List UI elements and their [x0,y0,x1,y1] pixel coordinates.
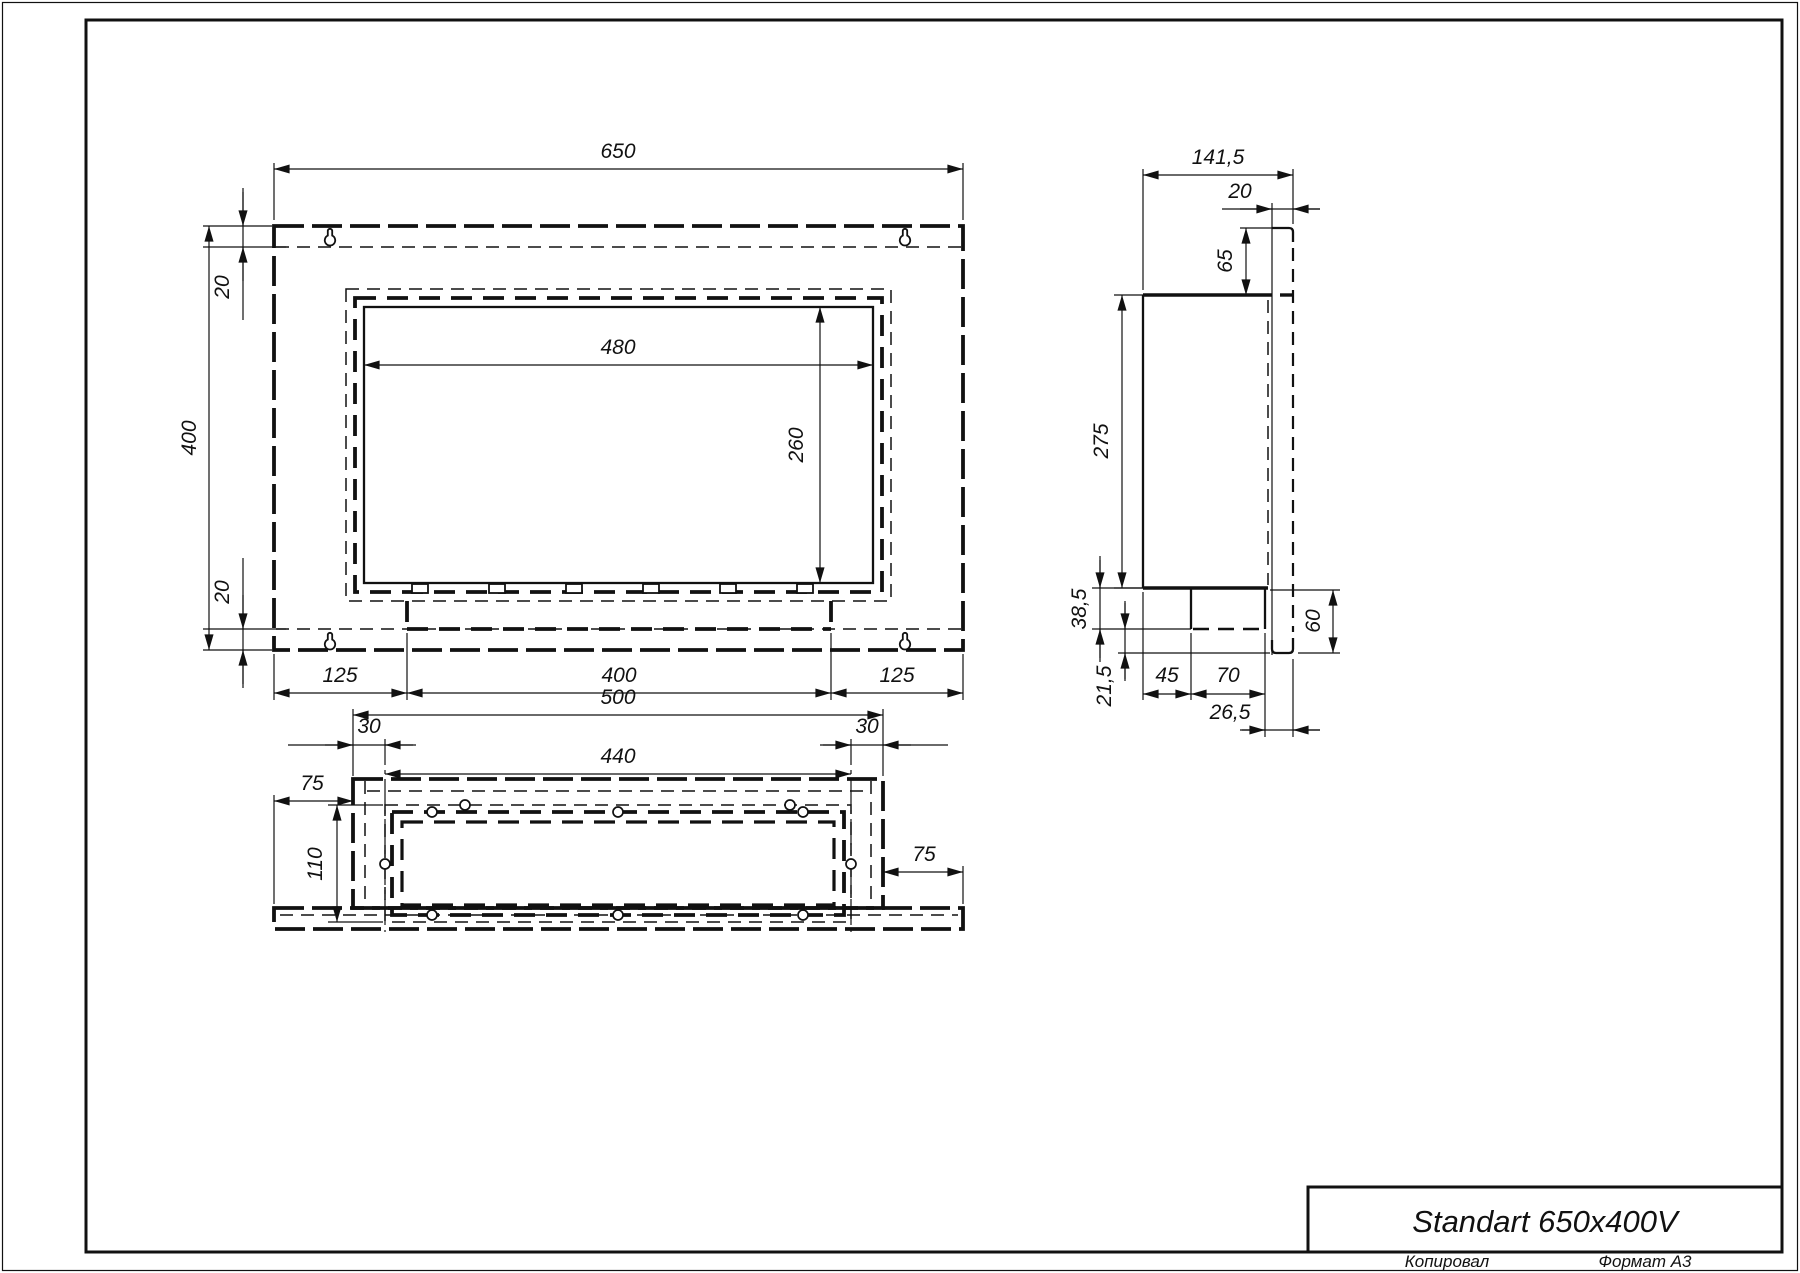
front-dimensions: 650 400 20 20 480 260 125 400 [178,140,963,700]
side-dim-body-height: 275 [1090,423,1113,459]
side-dim-tray-depth: 70 [1216,664,1240,687]
side-dim-depth-total: 141,5 [1192,146,1245,169]
side-dim-flange-overhang: 65 [1214,249,1237,273]
side-dim-lower-height: 60 [1302,609,1325,633]
outer-border [3,3,1798,1271]
front-dim-height: 400 [178,420,201,455]
front-dim-foot-right: 125 [879,664,914,687]
side-dim-flange-thickness: 20 [1227,180,1252,203]
bottom-dim-burner-width: 440 [600,745,635,768]
bottom-dim-inset-right: 30 [855,715,879,738]
bottom-view: 500 30 30 440 75 75 110 [274,686,963,932]
side-dim-bottom-gap: 21,5 [1093,665,1116,707]
bottom-screw-holes [380,800,856,920]
bottom-dim-flange-overhang-right: 75 [912,843,936,866]
bottom-dim-flange-overhang-left: 75 [300,772,324,795]
bottom-dim-burner-depth: 110 [304,847,327,881]
front-dim-offset-bottom: 20 [211,580,234,605]
front-dim-foot-left: 125 [322,664,357,687]
side-view: 141,5 20 65 275 38,5 21,5 [1068,146,1340,737]
front-dim-offset-top: 20 [211,275,234,300]
copied-by-label: Копировал [1405,1252,1490,1271]
title-block-product-title: Standart 650x400V [1412,1204,1681,1239]
side-dim-tray-back-offset: 26,5 [1209,701,1251,724]
side-flange-top [1272,228,1293,242]
bottom-body-outline [353,779,883,908]
sheet-frame: Standart 650x400V Копировал Формат А3 [3,3,1798,1272]
bottom-burner-hidden-inner [402,822,834,905]
side-dimensions: 141,5 20 65 275 38,5 21,5 [1068,146,1340,737]
side-dim-tray-height: 38,5 [1068,588,1091,629]
front-dim-foot-center: 400 [601,664,636,687]
front-dim-opening-height: 260 [785,427,808,463]
format-label: Формат А3 [1598,1252,1692,1271]
drawing-frame [86,20,1782,1252]
side-flange-bottom [1272,638,1293,653]
front-view: 650 400 20 20 480 260 125 400 [178,140,963,700]
side-dim-tray-front-offset: 45 [1155,664,1179,687]
front-dim-width: 650 [600,140,635,163]
drawing-sheet: Standart 650x400V Копировал Формат А3 [0,0,1800,1273]
drawing-canvas: Standart 650x400V Копировал Формат А3 [0,0,1800,1273]
bottom-dim-inset-left: 30 [357,715,381,738]
front-dim-opening-width: 480 [600,336,635,359]
bottom-dimensions: 500 30 30 440 75 75 110 [274,686,963,922]
bottom-dim-body-width: 500 [600,686,635,709]
bottom-burner-hidden-mid [392,812,844,915]
